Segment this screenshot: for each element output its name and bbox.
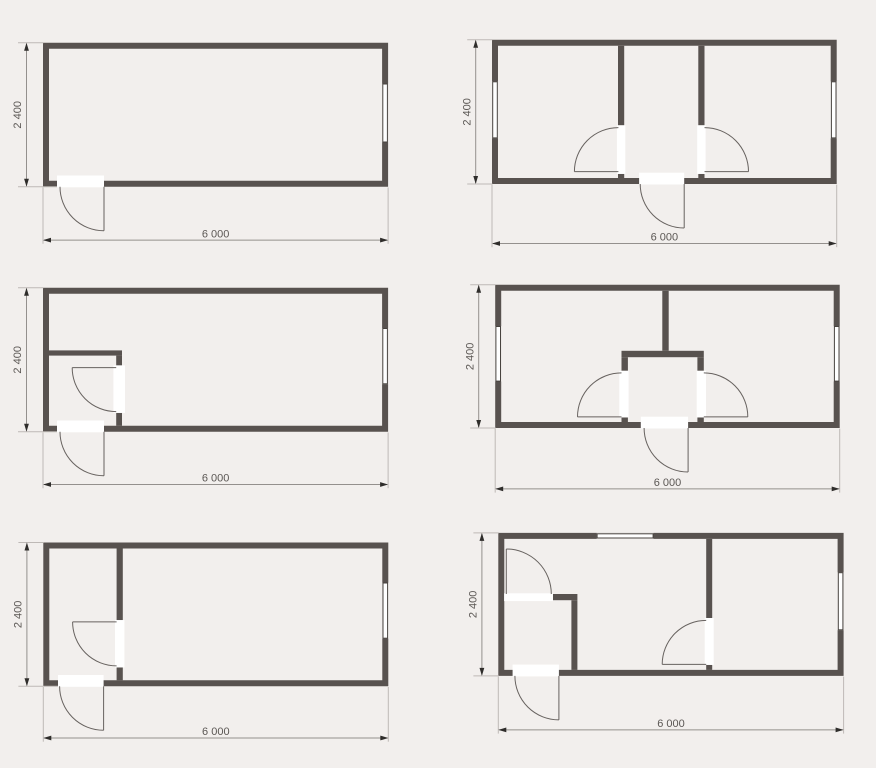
svg-text:2 400: 2 400: [12, 346, 24, 374]
svg-text:2 400: 2 400: [468, 591, 480, 619]
svg-text:6 000: 6 000: [654, 477, 682, 489]
svg-text:6 000: 6 000: [202, 472, 230, 484]
svg-text:6 000: 6 000: [651, 231, 679, 243]
svg-text:2 400: 2 400: [461, 98, 473, 126]
svg-text:6 000: 6 000: [202, 228, 230, 240]
svg-text:2 400: 2 400: [464, 343, 476, 371]
svg-text:6 000: 6 000: [657, 718, 685, 730]
svg-text:6 000: 6 000: [202, 726, 230, 738]
svg-text:2 400: 2 400: [12, 101, 24, 129]
svg-text:2 400: 2 400: [13, 601, 25, 629]
